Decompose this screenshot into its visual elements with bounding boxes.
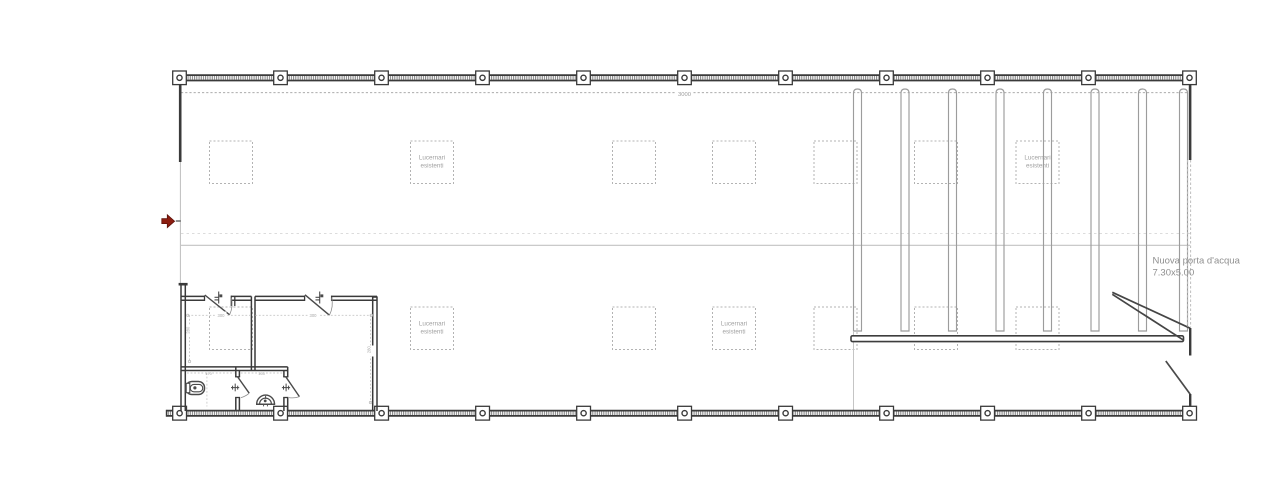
svg-text:Lucernari: Lucernari bbox=[1024, 155, 1050, 162]
svg-text:3000: 3000 bbox=[678, 92, 691, 98]
svg-text:300: 300 bbox=[310, 313, 318, 318]
svg-text:280: 280 bbox=[367, 346, 372, 354]
svg-text:esistenti: esistenti bbox=[722, 329, 745, 336]
svg-text:Lucernari: Lucernari bbox=[419, 321, 445, 328]
svg-text:300: 300 bbox=[218, 313, 226, 318]
svg-text:165: 165 bbox=[258, 371, 265, 376]
svg-text:280: 280 bbox=[186, 326, 191, 334]
svg-text:esistenti: esistenti bbox=[420, 163, 443, 170]
svg-text:esistenti: esistenti bbox=[420, 329, 443, 336]
svg-text:esistenti: esistenti bbox=[1026, 163, 1049, 170]
svg-text:Lucernari: Lucernari bbox=[419, 155, 445, 162]
svg-text:Lucernari: Lucernari bbox=[721, 321, 747, 328]
svg-text:170: 170 bbox=[205, 371, 212, 376]
svg-text:7.30x5.00: 7.30x5.00 bbox=[1153, 268, 1195, 279]
svg-text:Nuova porta d'acqua: Nuova porta d'acqua bbox=[1153, 256, 1241, 267]
